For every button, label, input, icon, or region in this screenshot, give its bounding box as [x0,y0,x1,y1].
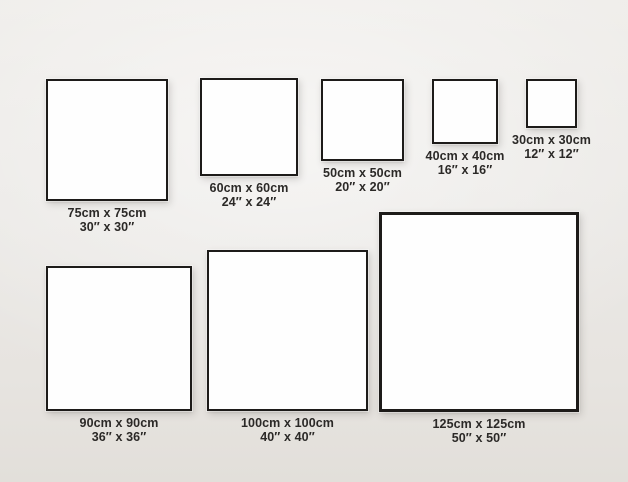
size-label-40cm: 40cm x 40cm 16″ x 16″ [426,149,505,177]
size-item-100cm: 100cm x 100cm 40″ x 40″ [207,250,368,411]
size-label-cm: 90cm x 90cm [80,416,159,430]
size-label-50cm: 50cm x 50cm 20″ x 20″ [323,166,402,194]
size-label-90cm: 90cm x 90cm 36″ x 36″ [80,416,159,444]
size-label-100cm: 100cm x 100cm 40″ x 40″ [241,416,334,444]
canvas-frame-100cm [207,250,368,411]
size-item-125cm: 125cm x 125cm 50″ x 50″ [379,212,579,412]
size-item-50cm: 50cm x 50cm 20″ x 20″ [321,79,404,161]
size-label-inch: 30″ x 30″ [68,220,147,234]
size-label-cm: 50cm x 50cm [323,166,402,180]
size-item-40cm: 40cm x 40cm 16″ x 16″ [432,79,498,144]
size-label-125cm: 125cm x 125cm 50″ x 50″ [432,417,525,445]
size-label-cm: 40cm x 40cm [426,149,505,163]
canvas-frame-125cm [379,212,579,412]
canvas-frame-60cm [200,78,298,176]
size-item-60cm: 60cm x 60cm 24″ x 24″ [200,78,298,176]
size-item-90cm: 90cm x 90cm 36″ x 36″ [46,266,192,411]
canvas-frame-40cm [432,79,498,144]
size-label-75cm: 75cm x 75cm 30″ x 30″ [68,206,147,234]
size-label-inch: 36″ x 36″ [80,430,159,444]
canvas-frame-50cm [321,79,404,161]
size-label-inch: 16″ x 16″ [426,163,505,177]
size-label-cm: 30cm x 30cm [512,133,591,147]
size-label-cm: 100cm x 100cm [241,416,334,430]
size-item-75cm: 75cm x 75cm 30″ x 30″ [46,79,168,201]
size-label-inch: 50″ x 50″ [432,431,525,445]
canvas-frame-30cm [526,79,577,128]
size-label-30cm: 30cm x 30cm 12″ x 12″ [512,133,591,161]
size-label-inch: 20″ x 20″ [323,180,402,194]
size-label-cm: 75cm x 75cm [68,206,147,220]
size-label-inch: 12″ x 12″ [512,147,591,161]
size-item-30cm: 30cm x 30cm 12″ x 12″ [526,79,577,128]
size-comparison-chart: 75cm x 75cm 30″ x 30″ 60cm x 60cm 24″ x … [0,0,628,482]
size-label-60cm: 60cm x 60cm 24″ x 24″ [210,181,289,209]
canvas-frame-90cm [46,266,192,411]
size-label-cm: 60cm x 60cm [210,181,289,195]
size-label-cm: 125cm x 125cm [432,417,525,431]
canvas-frame-75cm [46,79,168,201]
size-label-inch: 40″ x 40″ [241,430,334,444]
size-label-inch: 24″ x 24″ [210,195,289,209]
